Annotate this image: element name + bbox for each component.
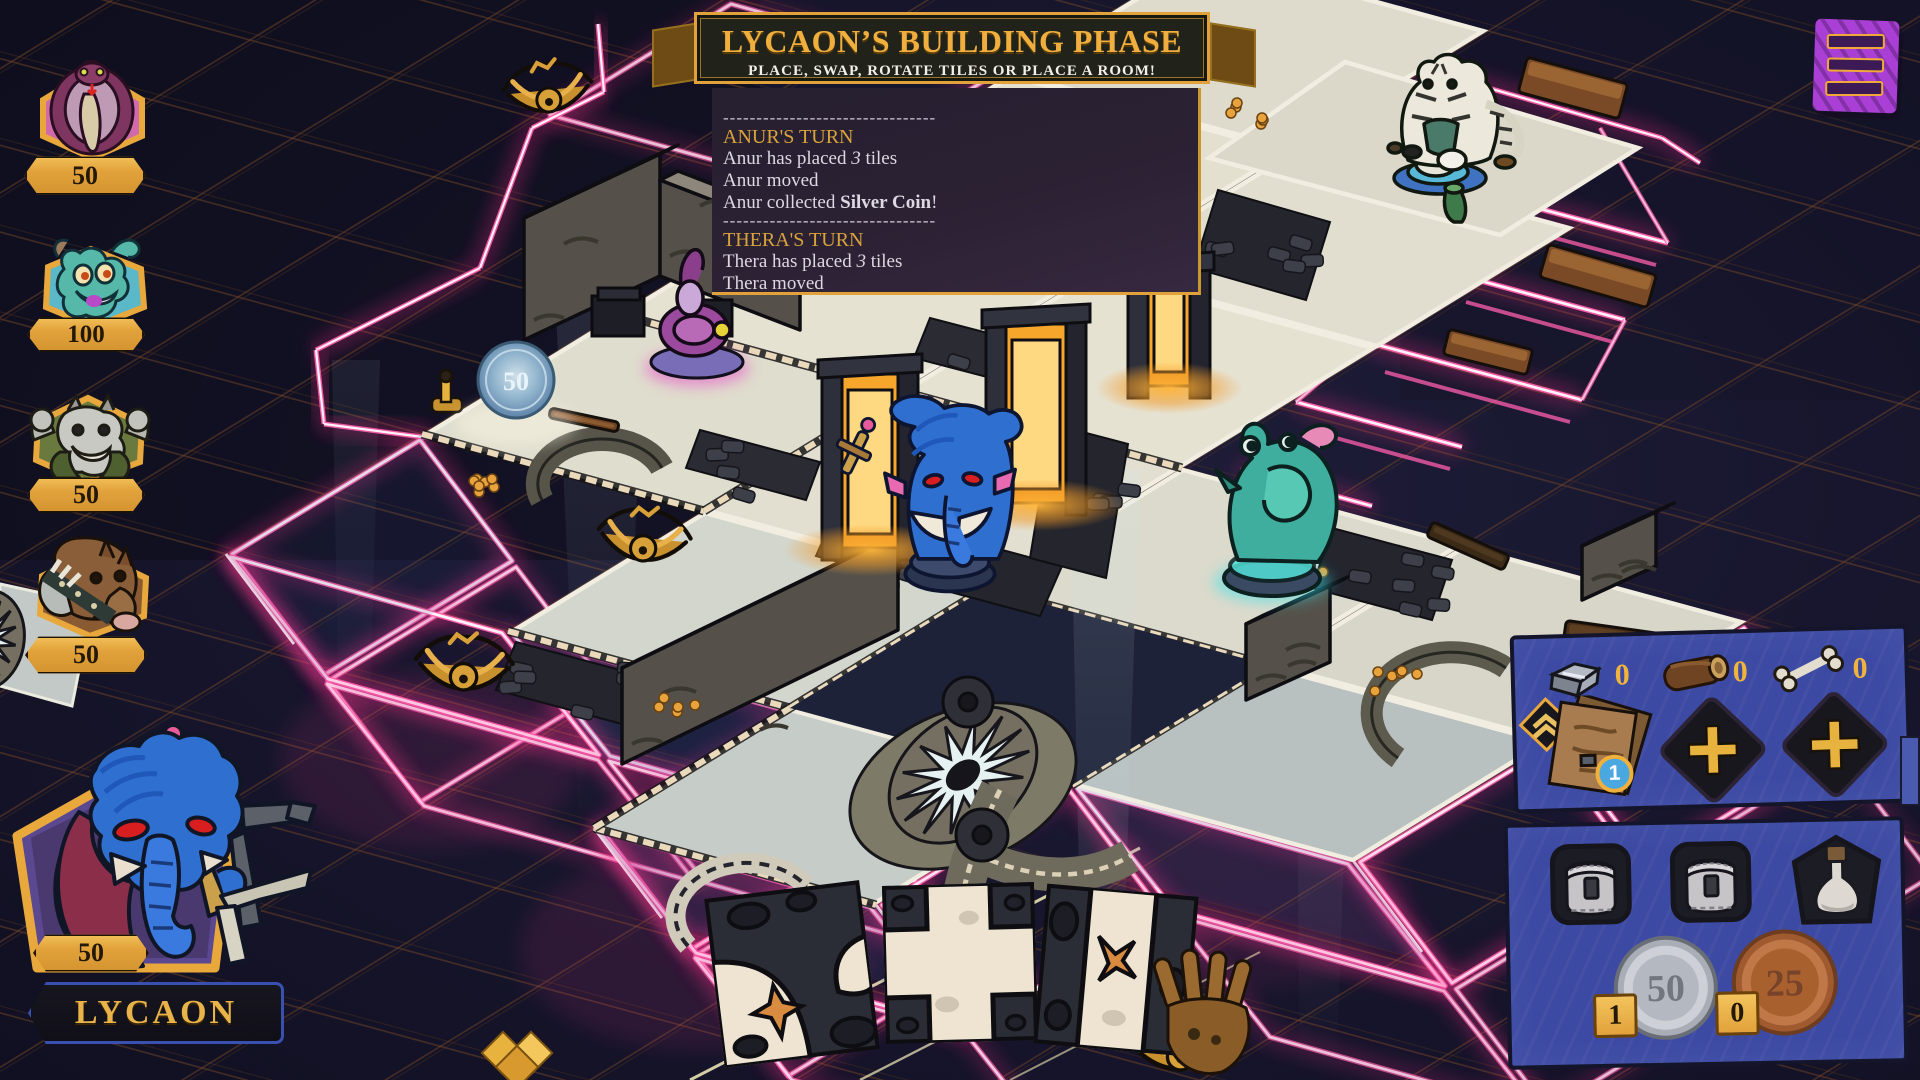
svg-text:50: 50 [1646, 967, 1685, 1010]
svg-text:25: 25 [1765, 962, 1804, 1005]
svg-text:50: 50 [503, 367, 529, 396]
